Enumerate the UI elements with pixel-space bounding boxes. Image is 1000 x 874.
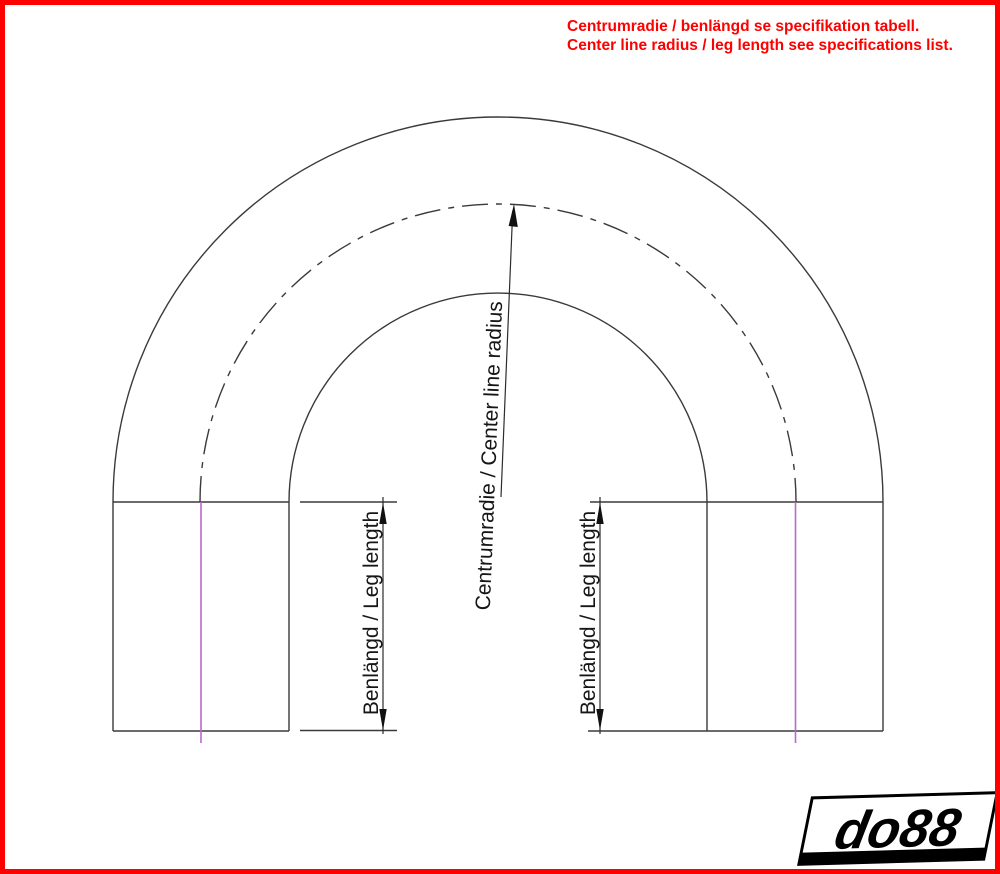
label-leg-length-right: Benlängd / Leg length	[577, 511, 600, 715]
do88-logo-text: do88	[831, 801, 965, 858]
radius-arrowhead-icon	[509, 204, 518, 227]
page-frame: Centrumradie / benlängd se specifikation…	[0, 0, 1000, 874]
bend-diagram: Benlängd / Leg length Benlängd / Leg len…	[5, 5, 1000, 874]
label-leg-length-left: Benlängd / Leg length	[360, 511, 383, 715]
do88-logo: do88	[804, 794, 992, 863]
label-center-line-radius: Centrumradie / Center line radius	[472, 301, 507, 611]
do88-logo-frame: do88	[797, 791, 999, 866]
